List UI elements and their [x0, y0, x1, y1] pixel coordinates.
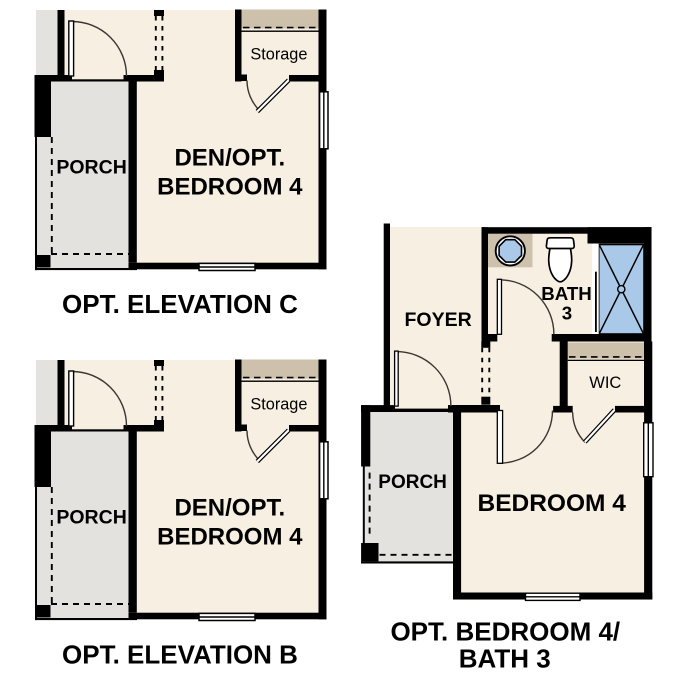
svg-text:WIC: WIC [589, 374, 621, 392]
svg-text:Storage: Storage [250, 46, 307, 64]
svg-text:BATH: BATH [541, 283, 592, 304]
svg-text:PORCH: PORCH [56, 156, 126, 178]
svg-text:BEDROOM 4: BEDROOM 4 [157, 524, 303, 551]
svg-text:BATH 3: BATH 3 [459, 644, 551, 674]
svg-text:OPT. ELEVATION C: OPT. ELEVATION C [62, 289, 298, 319]
svg-text:PORCH: PORCH [378, 472, 447, 493]
svg-text:PORCH: PORCH [56, 506, 126, 528]
svg-text:3: 3 [562, 303, 572, 324]
svg-text:BEDROOM 4: BEDROOM 4 [478, 490, 627, 517]
svg-text:OPT. BEDROOM 4/: OPT. BEDROOM 4/ [390, 617, 620, 647]
svg-text:OPT. ELEVATION B: OPT. ELEVATION B [62, 640, 298, 670]
svg-text:Storage: Storage [250, 396, 307, 414]
svg-text:DEN/OPT.: DEN/OPT. [174, 495, 285, 522]
svg-text:FOYER: FOYER [405, 309, 472, 331]
svg-text:BEDROOM 4: BEDROOM 4 [157, 174, 303, 201]
svg-text:DEN/OPT.: DEN/OPT. [174, 145, 285, 172]
